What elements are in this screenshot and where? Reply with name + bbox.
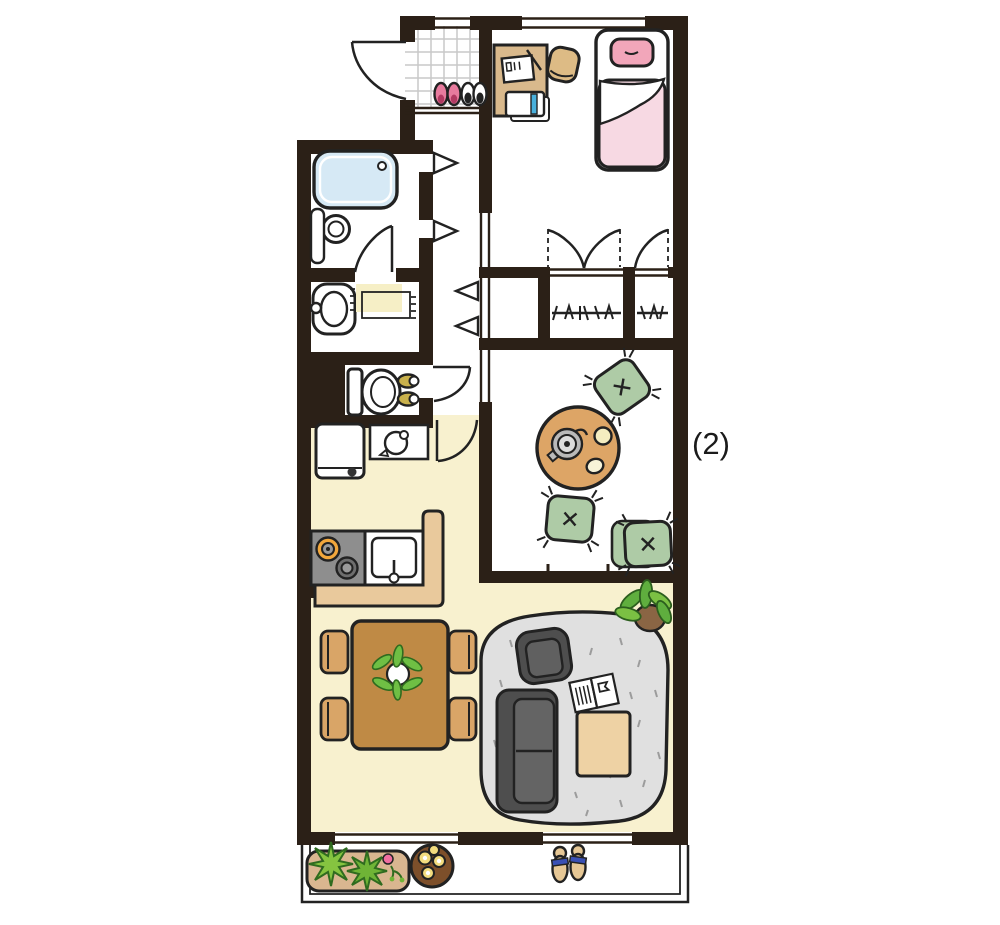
kettle-shelf: [370, 425, 428, 459]
desk-notebook: [506, 92, 549, 121]
hall-closet-triangle-2: [456, 317, 478, 335]
bath-mat: [350, 284, 416, 318]
balcony: [302, 842, 688, 902]
toilet: [348, 369, 400, 415]
floor-cushion: [615, 511, 680, 576]
coffee-table: [577, 712, 630, 776]
desk-stool: [546, 45, 581, 83]
toilet-door-arc: [433, 367, 470, 401]
sofa: [497, 690, 557, 812]
annotation-label: (2): [692, 426, 730, 462]
planter-leaves: [347, 851, 387, 891]
bath-shelf: [311, 209, 324, 263]
bed: [596, 30, 668, 170]
folding-door-symbols: [434, 153, 478, 335]
planter-leaves: [309, 842, 353, 886]
floor-plan-drawing: [0, 0, 1000, 925]
genkan-shoes: [435, 83, 487, 105]
teacup: [595, 428, 612, 445]
bathroom-door-triangle: [434, 153, 457, 173]
washbasin: [311, 284, 355, 334]
refrigerator: [316, 424, 364, 478]
dining-table: [352, 621, 448, 749]
flower-pot: [411, 845, 453, 887]
shower-stool: [323, 216, 350, 243]
closet-door-arcs: [548, 229, 668, 268]
kitchen-sink: [365, 531, 423, 585]
entry-door-arc: [352, 42, 406, 99]
washroom-door-triangle: [434, 221, 457, 241]
bathroom-door-arc: [355, 226, 392, 272]
floor-plan-page: (2): [0, 0, 1000, 925]
desk-notepad: [502, 55, 534, 82]
low-table: [537, 407, 619, 489]
closet-hangers: [552, 306, 668, 320]
hall-closet-triangle-1: [456, 282, 478, 300]
armchair: [515, 627, 574, 686]
stove: [311, 531, 365, 585]
floor-cushion: [536, 485, 603, 552]
bathtub: [314, 151, 397, 208]
bed-pillow: [611, 39, 653, 66]
pink-flower: [383, 854, 393, 864]
desk: [494, 45, 549, 121]
